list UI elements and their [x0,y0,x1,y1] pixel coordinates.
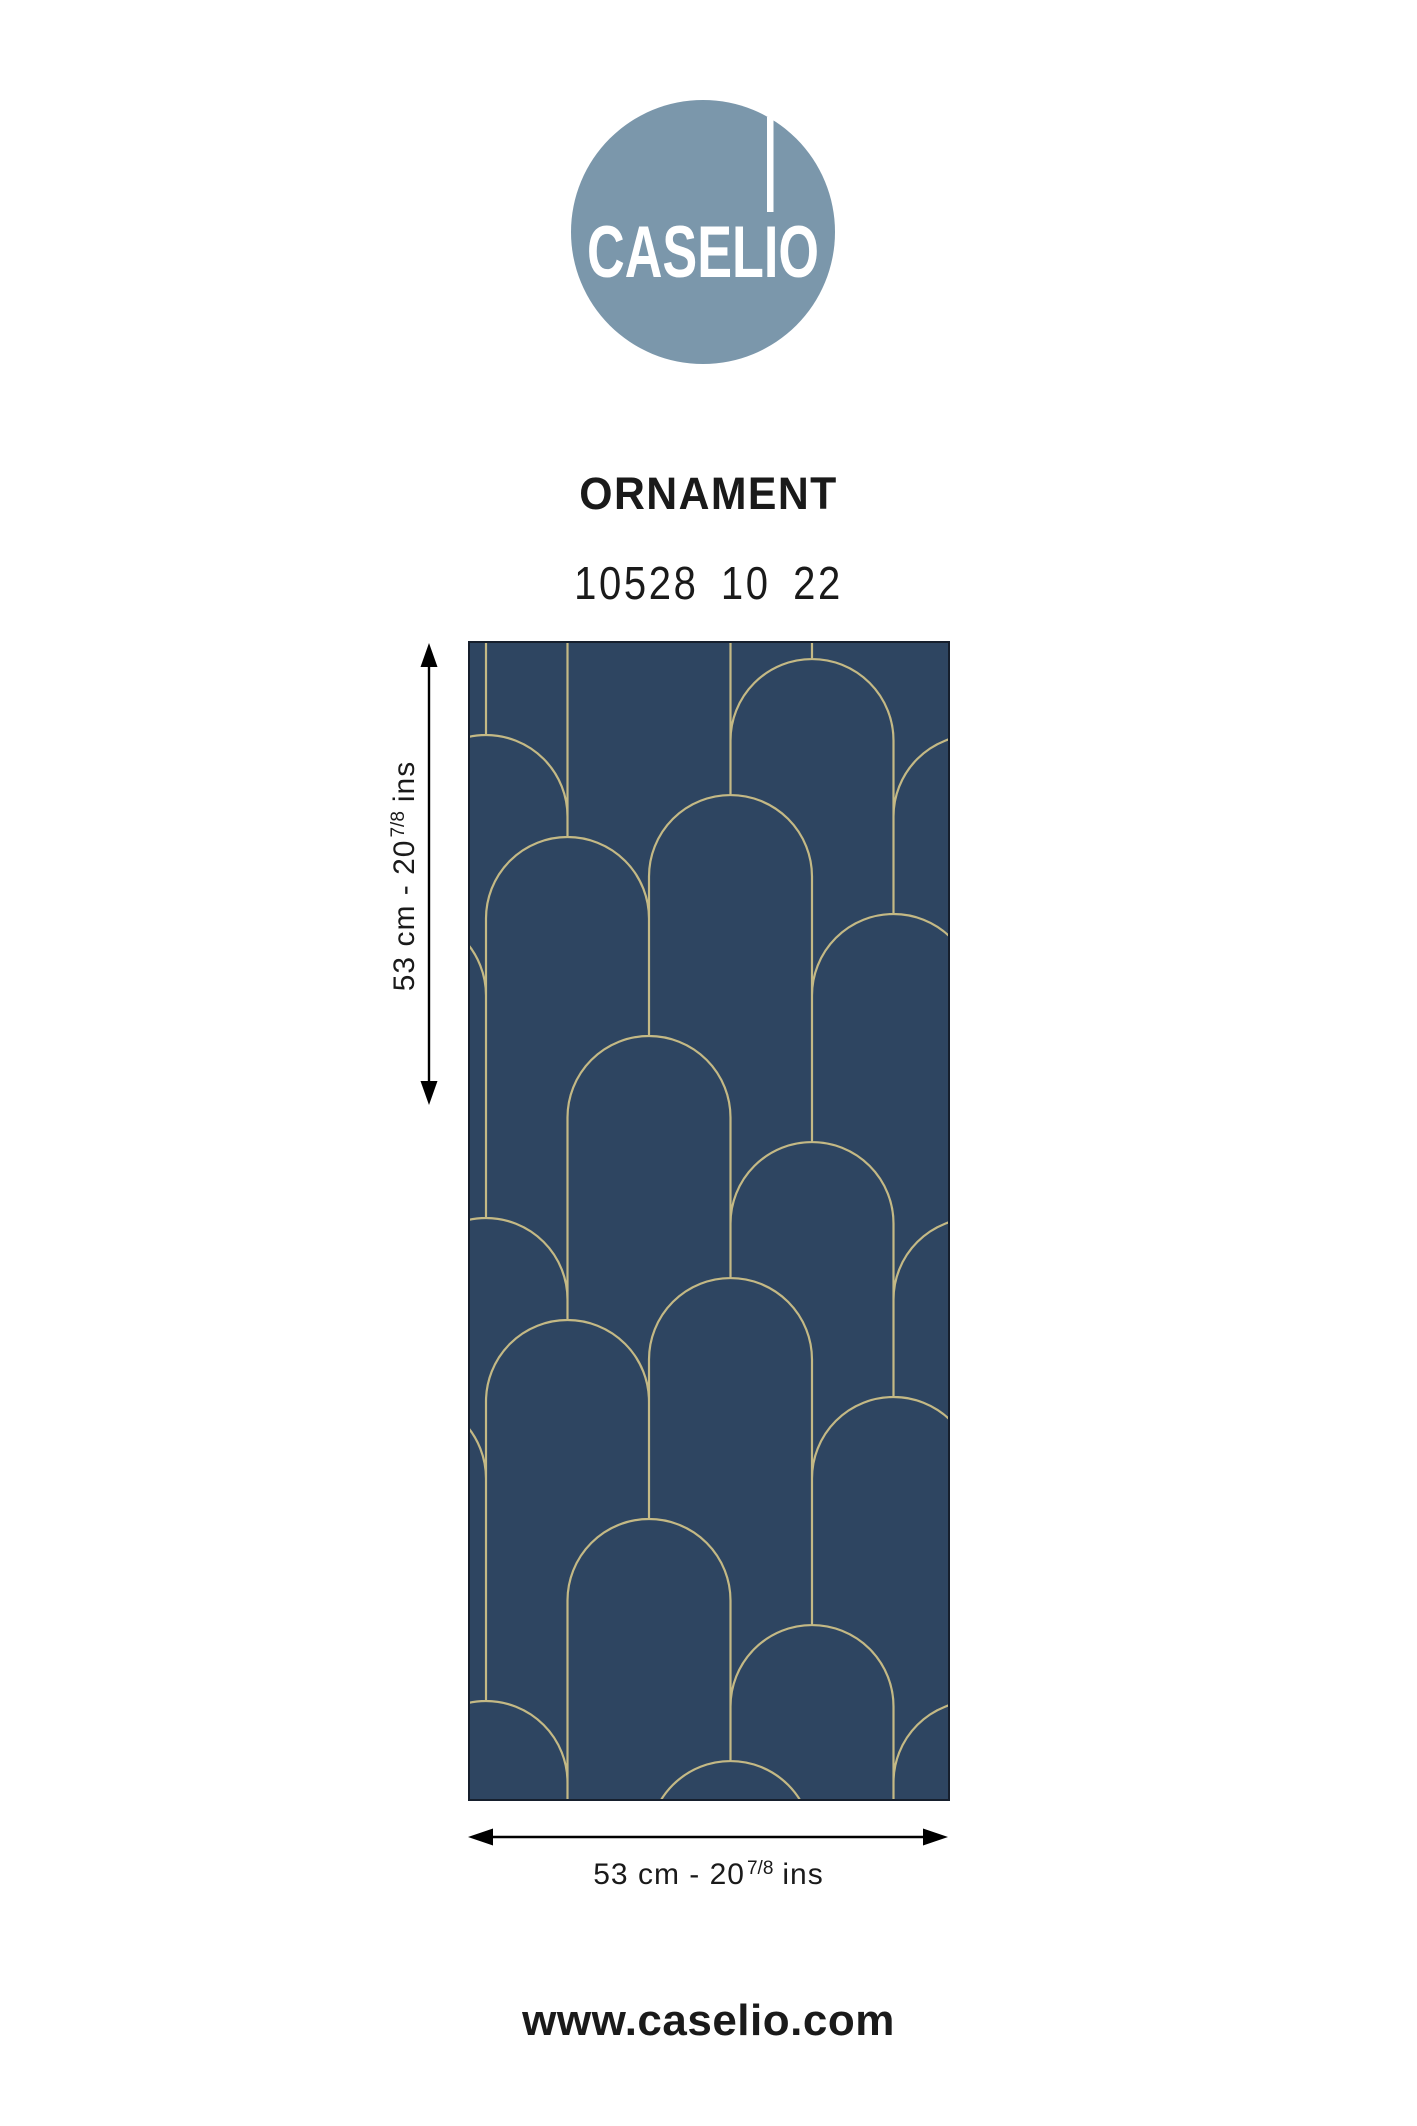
width-label-value: 53 cm - 20 [593,1858,745,1891]
width-label-fraction: 7/8 [747,1858,773,1879]
brand-name: CASELIO [587,212,819,293]
down-arrowhead-icon [421,1081,438,1105]
swatch-background [468,641,950,1801]
wallpaper-swatch [468,641,950,1801]
width-label-unit: ins [782,1858,823,1891]
logo-bar [767,117,774,212]
width-dimension-label: 53 cm - 207/8ins [0,1858,1417,1892]
product-name: ORNAMENT [35,468,1381,520]
website-url: www.caselio.com [0,1996,1417,2046]
height-dimension-label: 53 cm - 207/8ins [388,725,422,1027]
right-arrowhead-icon [923,1829,948,1846]
height-label-fraction: 7/8 [388,811,409,837]
product-reference: 10528 10 22 [92,556,1325,610]
left-arrowhead-icon [468,1829,493,1846]
page: CASELIO ORNAMENT 10528 10 22 53 cm - 207… [0,0,1417,2126]
height-label-value: 53 cm - 20 [388,840,421,992]
wallpaper-pattern-svg [468,641,950,1801]
height-label-unit: ins [388,761,421,802]
brand-logo: CASELIO [571,100,835,364]
up-arrowhead-icon [421,643,438,667]
width-dimension-arrow [464,1823,952,1851]
